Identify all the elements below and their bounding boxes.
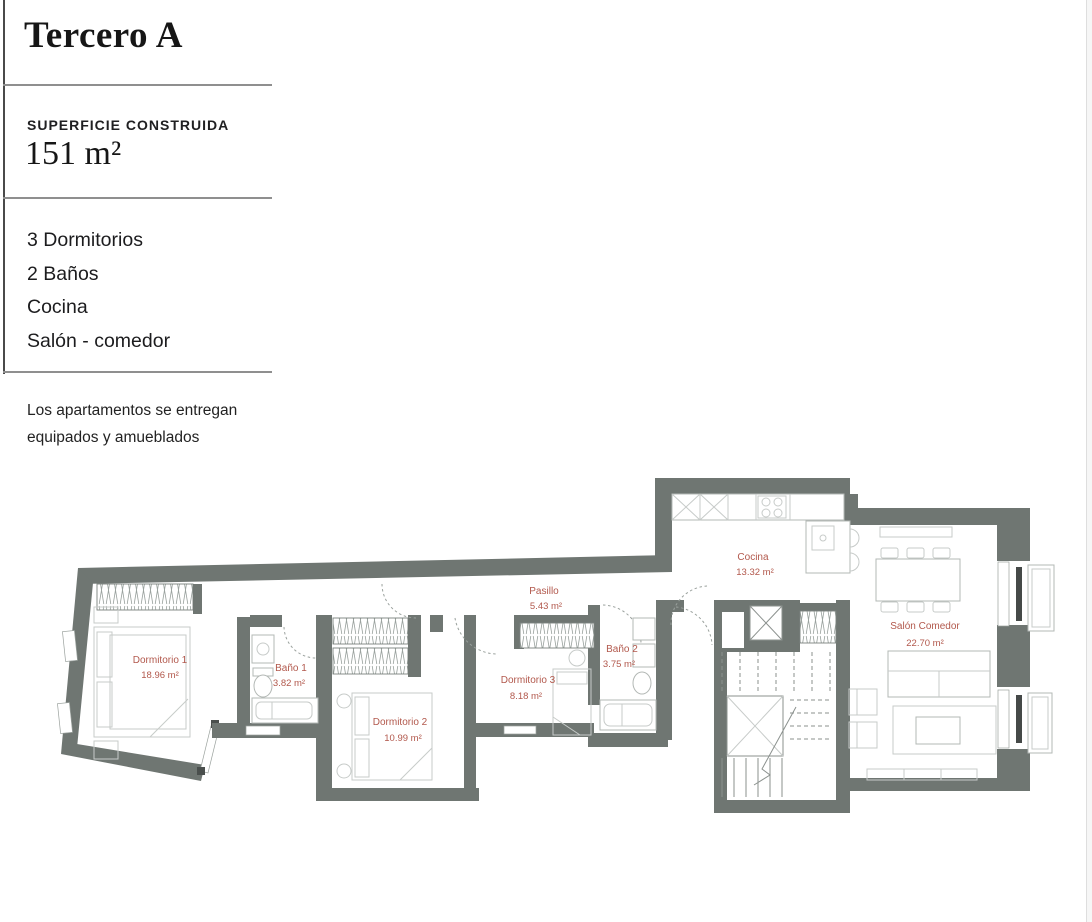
room-area: 22.70 m² [906,638,944,649]
nightstand [337,694,351,708]
wall [197,767,205,775]
staircase [722,652,831,797]
room-area: 3.82 m² [273,678,305,689]
toilet [254,675,272,697]
nightstand [337,764,351,778]
wall [237,617,250,723]
wall [997,625,1030,687]
room-label: Pasillo [529,586,559,597]
floor-plan-page: Tercero A SUPERFICIE CONSTRUIDA 151 m² 3… [0,0,1092,922]
room-label: Cocina [737,552,769,563]
room-label: Dormitorio 1 [133,655,188,666]
page-title: Tercero A [24,14,183,57]
room-label: Dormitorio 3 [501,675,556,686]
wall [714,638,727,813]
window [998,690,1009,748]
left-edge-rule [3,0,5,374]
divider [3,197,272,199]
wardrobe [520,623,594,648]
room-label: Baño 2 [606,644,638,655]
divider [3,84,272,86]
feature-bathrooms: 2 Baños [27,258,170,292]
wall [316,788,479,801]
chair [933,548,950,558]
shutter [1016,567,1022,621]
room-area: 13.32 m² [736,567,774,578]
wall [78,555,672,584]
surface-built-label: SUPERFICIE CONSTRUIDA [27,117,229,133]
room-area: 10.99 m² [384,733,422,744]
wall [250,615,282,627]
armchair [849,689,877,715]
chair [881,548,898,558]
armchair [849,722,877,748]
banyo2-fixtures [600,618,656,730]
room-area: 8.18 m² [510,691,542,702]
wardrobe [97,584,193,610]
dining-table [876,559,960,601]
vent-window [246,726,280,735]
sideboard [880,527,952,537]
toilet [633,672,651,694]
wall [656,600,684,612]
surface-built-value: 151 m² [25,135,121,173]
wall [588,605,600,705]
window [998,562,1009,626]
vent-window [504,726,536,734]
wall [655,478,850,494]
room-area: 3.75 m² [603,659,635,670]
nightstand [569,650,585,666]
wall [193,584,202,614]
chair [933,602,950,612]
chair [907,548,924,558]
floor-plan-drawing: Dormitorio 1 18.96 m² Baño 1 3.82 m² Dor… [0,455,1092,922]
chair [907,602,924,612]
chair [881,602,898,612]
wall [408,615,421,677]
coffee-table [916,717,960,744]
furnished-note: Los apartamentos se entregan equipados y… [27,397,237,451]
wall [430,615,443,632]
wall [61,744,205,781]
wall [836,600,850,800]
door-arc-entrada [676,607,712,645]
shaft-cell [722,612,744,648]
wardrobe [333,618,408,644]
feature-livingroom: Salón - comedor [27,325,170,359]
sink [633,618,655,640]
room-label: Baño 1 [275,663,307,674]
door-arc-dormitorio1 [382,584,416,618]
wall [997,525,1030,561]
wall [844,508,1030,525]
room-area: 5.43 m² [530,601,562,612]
bed-dormitorio3 [553,650,591,735]
living-dining-furniture [849,527,996,780]
sink [252,635,274,663]
wall [714,800,850,813]
room-area: 18.96 m² [141,670,179,681]
shutter [1016,695,1022,743]
bed-dormitorio1 [94,607,190,759]
stool [850,553,859,571]
wardrobe [800,611,836,643]
stool [850,529,859,547]
kitchen-peninsula [806,521,850,573]
feature-bedrooms: 3 Dormitorios [27,224,170,258]
door-arc-banyo1 [284,627,316,658]
wall [464,615,476,788]
room-label: Dormitorio 2 [373,717,428,728]
divider [3,371,272,373]
page-right-edge [1086,0,1092,922]
feature-kitchen: Cocina [27,291,170,325]
feature-list: 3 Dormitorios 2 Baños Cocina Salón - com… [27,224,170,358]
wall [656,600,672,740]
wardrobe [333,648,408,674]
wall [514,615,598,623]
room-label: Salón Comedor [890,621,960,632]
